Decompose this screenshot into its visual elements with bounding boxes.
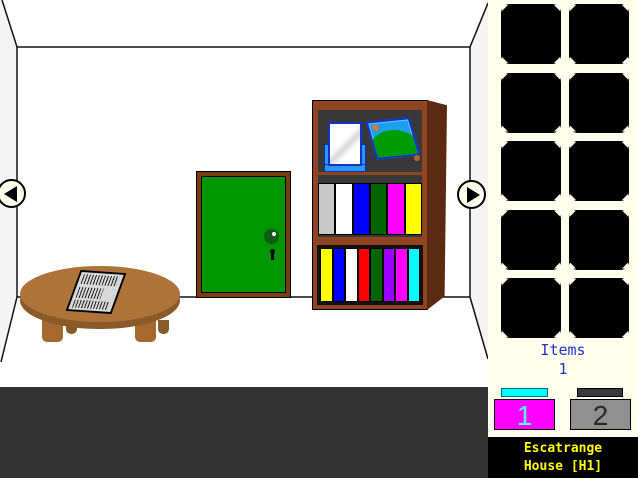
door-panel[interactable]	[201, 176, 286, 293]
keyhole-icon	[271, 253, 274, 260]
book[interactable]	[345, 248, 358, 302]
bottom-dark-band	[0, 387, 488, 478]
door[interactable]	[196, 171, 291, 298]
bookshelf-bottom-shelf[interactable]	[317, 245, 423, 305]
book[interactable]	[370, 183, 387, 235]
book[interactable]	[320, 248, 333, 302]
inventory-slot[interactable]	[569, 210, 629, 270]
table-leg	[158, 320, 169, 334]
book[interactable]	[408, 248, 421, 302]
bookshelf[interactable]	[312, 100, 447, 311]
door-knob[interactable]	[264, 229, 279, 244]
inventory-slot[interactable]	[501, 278, 561, 338]
middle-book-row	[318, 183, 422, 235]
book[interactable]	[333, 248, 346, 302]
inventory-slot[interactable]	[501, 141, 561, 201]
game-title-line2: House [H1]	[488, 458, 638, 476]
game-window: Items 1 1 2 Escatrange House [H1]	[0, 0, 638, 478]
paper-stripes	[72, 300, 111, 310]
view-button-1[interactable]: 1	[494, 399, 555, 430]
game-title-bar: Escatrange House [H1]	[488, 437, 638, 478]
book[interactable]	[335, 183, 352, 235]
inventory-slot[interactable]	[501, 73, 561, 133]
mirror-glass[interactable]	[328, 122, 362, 166]
picture-hill	[366, 127, 421, 159]
inventory-slot[interactable]	[501, 4, 561, 64]
right-arrow-icon	[467, 187, 480, 203]
bottom-book-row	[320, 248, 420, 302]
paper-stripes	[76, 286, 116, 299]
inventory-slot[interactable]	[501, 210, 561, 270]
view2-indicator-bar	[577, 388, 623, 397]
view1-indicator-bar	[501, 388, 548, 397]
nav-right-button[interactable]	[457, 180, 486, 209]
bookshelf-middle-shelf[interactable]	[318, 175, 422, 237]
inventory-slot[interactable]	[569, 141, 629, 201]
paper-stripes	[81, 274, 120, 286]
bookshelf-side	[427, 100, 447, 310]
book[interactable]	[353, 183, 370, 235]
book[interactable]	[405, 183, 422, 235]
items-label: Items	[488, 341, 638, 359]
book[interactable]	[395, 248, 408, 302]
left-arrow-icon	[4, 186, 17, 202]
bookshelf-top-shelf[interactable]	[318, 110, 422, 172]
inventory-slot[interactable]	[569, 278, 629, 338]
picture-frame[interactable]	[366, 117, 421, 160]
view-button-2[interactable]: 2	[570, 399, 631, 430]
room-view	[0, 0, 488, 478]
mirror[interactable]	[324, 122, 366, 172]
inventory-sidebar: Items 1 1 2 Escatrange House [H1]	[488, 0, 638, 478]
items-count: 1	[488, 360, 638, 378]
inventory-slot[interactable]	[569, 73, 629, 133]
book[interactable]	[370, 248, 383, 302]
picture-stand-peg	[414, 155, 420, 161]
inventory-grid	[501, 4, 629, 338]
table[interactable]	[18, 264, 182, 346]
picture-sun	[372, 125, 380, 131]
book[interactable]	[387, 183, 404, 235]
book[interactable]	[318, 183, 335, 235]
game-title-line1: Escatrange	[488, 440, 638, 458]
inventory-slot[interactable]	[569, 4, 629, 64]
book[interactable]	[383, 248, 396, 302]
book[interactable]	[358, 248, 371, 302]
